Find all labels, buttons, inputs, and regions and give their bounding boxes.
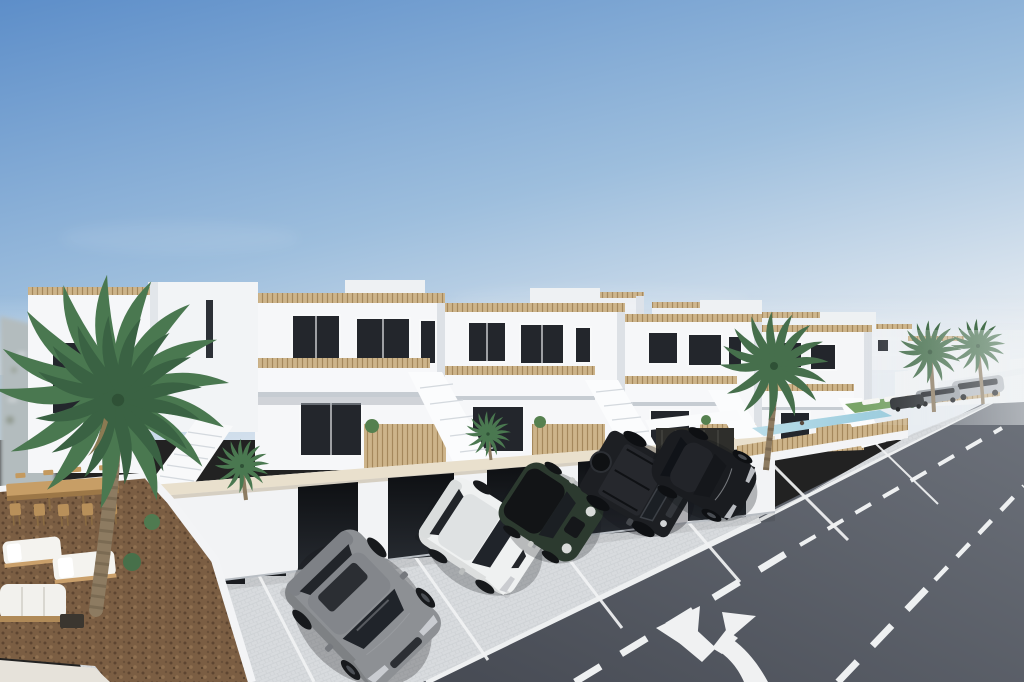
render-image [0,0,1024,682]
swimmer [800,421,804,425]
outdoor-sofa [0,584,66,622]
distance-haze [860,330,1024,425]
coffee-table [60,614,84,628]
